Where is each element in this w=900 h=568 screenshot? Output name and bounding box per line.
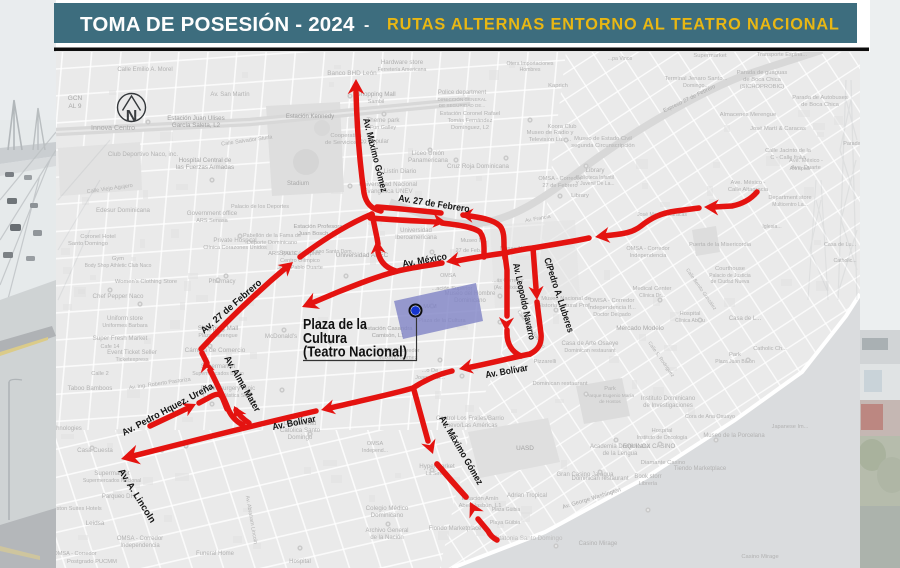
svg-text:Cámara de Comercio: Cámara de Comercio	[185, 347, 246, 354]
svg-text:Medical Center: Medical Center	[633, 286, 672, 292]
svg-text:McDonald's: McDonald's	[265, 333, 297, 340]
svg-text:Museo de Estado Civil: Museo de Estado Civil	[574, 136, 632, 142]
svg-text:OMSA - Corredor: OMSA - Corredor	[626, 246, 669, 252]
svg-text:Hospital: Hospital	[680, 311, 701, 317]
svg-text:Ave. México -: Ave. México -	[730, 180, 765, 186]
svg-text:ARS Senasa: ARS Senasa	[196, 218, 228, 224]
svg-text:Library: Library	[571, 193, 589, 199]
svg-text:Uniformes Barbara: Uniformes Barbara	[102, 323, 147, 329]
svg-text:de Boca Chica: de Boca Chica	[801, 102, 839, 108]
svg-text:Mercado Modelo: Mercado Modelo	[616, 325, 664, 332]
svg-text:de Boca Chica: de Boca Chica	[743, 77, 781, 83]
svg-text:...pa Vinos: ...pa Vinos	[608, 56, 633, 62]
svg-text:Multicentro La...: Multicentro La...	[772, 202, 808, 208]
svg-text:Archivo General: Archivo General	[365, 528, 408, 534]
svg-text:Body Shop Athletic Club Naco: Body Shop Athletic Club Naco	[85, 263, 152, 269]
svg-text:Parada: Parada	[843, 141, 860, 147]
svg-text:Doctor Delgado: Doctor Delgado	[593, 312, 630, 318]
svg-text:Government office: Government office	[187, 210, 238, 217]
svg-text:Independencia If...: Independencia If...	[588, 305, 636, 311]
svg-text:Universidad: Universidad	[400, 228, 432, 234]
svg-text:Parada de guaguas: Parada de guaguas	[737, 70, 788, 76]
svg-text:Pizzarelli: Pizzarelli	[534, 359, 556, 365]
svg-text:Casa de L...: Casa de L...	[729, 316, 762, 322]
svg-text:OMSA: OMSA	[440, 273, 456, 279]
svg-text:Gran Casino Jaragua: Gran Casino Jaragua	[556, 472, 614, 478]
svg-text:Av. San Martín: Av. San Martín	[210, 92, 249, 98]
svg-text:Calle Altagracia: Calle Altagracia	[728, 187, 769, 193]
svg-text:OMSA - Corredor: OMSA - Corredor	[590, 298, 635, 304]
svg-text:Fiondo Marketplace: Fiondo Marketplace	[429, 526, 482, 532]
svg-text:Park: Park	[729, 352, 741, 358]
svg-text:Estación Kennedy: Estación Kennedy	[286, 114, 334, 120]
svg-text:Ticketexpress: Ticketexpress	[115, 357, 148, 363]
svg-text:Museo de la Porcelana: Museo de la Porcelana	[703, 433, 765, 439]
svg-text:Pabellón de la Fama de: Pabellón de la Fama de	[243, 233, 301, 239]
svg-text:AL 9: AL 9	[68, 103, 82, 110]
svg-text:de Hostos: de Hostos	[599, 399, 621, 405]
svg-text:de la Nación: de la Nación	[370, 535, 403, 541]
svg-text:Calle 2: Calle 2	[91, 371, 108, 377]
svg-text:Banco BHD León: Banco BHD León	[327, 70, 377, 77]
svg-text:ARS PALIC: ARS PALIC	[268, 251, 298, 257]
svg-text:EQUINOX CASINO: EQUINOX CASINO	[623, 444, 676, 450]
svg-text:Edesur Dominicana: Edesur Dominicana	[96, 207, 151, 214]
svg-text:OMSA - Corredor: OMSA - Corredor	[53, 551, 96, 557]
svg-text:Panamericana: Panamericana	[408, 157, 448, 164]
svg-text:Almacenes Merengue: Almacenes Merengue	[720, 112, 776, 118]
svg-text:TOMA DE POSESIÓN - 2024: TOMA DE POSESIÓN - 2024	[80, 12, 355, 36]
svg-text:GCN: GCN	[68, 95, 83, 102]
svg-text:Puerta de la Misericordia: Puerta de la Misericordia	[689, 242, 752, 248]
svg-text:Estación Coronel Rafael: Estación Coronel Rafael	[440, 111, 500, 117]
svg-text:UASD: UASD	[516, 445, 534, 452]
svg-text:Independ...: Independ...	[362, 448, 388, 454]
svg-text:Terminal Jenaro Santo...: Terminal Jenaro Santo...	[665, 76, 728, 82]
svg-text:Dominican restaurant: Dominican restaurant	[532, 381, 587, 387]
svg-text:Listín Diario: Listín Diario	[384, 168, 417, 175]
svg-text:Cora de Ana Osuayo: Cora de Ana Osuayo	[685, 414, 735, 420]
svg-text:27 de Feb...: 27 de Feb...	[456, 248, 485, 254]
svg-text:Estación Profesora: Estación Profesora	[294, 224, 344, 230]
svg-text:Iglesia...: Iglesia...	[762, 224, 781, 230]
svg-text:de la Lengua: de la Lengua	[603, 451, 638, 457]
svg-text:OMSA - Corredor: OMSA - Corredor	[538, 176, 581, 182]
svg-text:Innova Centro: Innova Centro	[91, 125, 135, 132]
svg-text:José Martí & Caracas: José Martí & Caracas	[750, 126, 806, 132]
svg-text:Playa Güibia: Playa Güibia	[490, 520, 521, 526]
svg-text:Sambil: Sambil	[368, 99, 384, 105]
svg-text:Calle Emilio A. Morel: Calle Emilio A. Morel	[117, 67, 172, 73]
svg-text:Event Ticket Seller: Event Ticket Seller	[107, 350, 157, 356]
svg-text:Instituto de Oncología: Instituto de Oncología	[637, 435, 688, 441]
svg-text:Tomás Fernández: Tomás Fernández	[448, 118, 493, 124]
svg-text:DE SEGURIDAD DE...: DE SEGURIDAD DE...	[439, 103, 485, 108]
svg-text:-: -	[364, 17, 369, 34]
svg-text:Hombres: Hombres	[519, 67, 540, 73]
svg-text:Supermarket: Supermarket	[693, 53, 727, 59]
svg-text:Hospital: Hospital	[652, 428, 673, 434]
svg-text:de Ciudad Nueva: de Ciudad Nueva	[711, 279, 750, 285]
svg-text:Women's Clothing Store: Women's Clothing Store	[115, 279, 177, 285]
svg-text:Ferretería Americana: Ferretería Americana	[378, 67, 427, 73]
svg-text:Kaprich: Kaprich	[548, 83, 568, 89]
svg-text:Instituto Dominicano: Instituto Dominicano	[641, 396, 696, 402]
svg-text:Cruz Roja Dominicana: Cruz Roja Dominicana	[447, 163, 509, 170]
svg-text:Chef Pepper Naco: Chef Pepper Naco	[93, 293, 144, 300]
svg-text:Casa de Arte Osaeye: Casa de Arte Osaeye	[561, 341, 619, 347]
svg-text:Domínguez, L2: Domínguez, L2	[451, 125, 489, 131]
svg-text:Adrian Tropical: Adrian Tropical	[507, 493, 547, 499]
svg-text:Domingo...: Domingo...	[683, 83, 709, 89]
svg-text:(Teatro Nacional): (Teatro Nacional)	[303, 344, 407, 361]
svg-text:Book storr: Book storr	[634, 474, 661, 480]
svg-text:Colegio Médico: Colegio Médico	[366, 505, 409, 512]
svg-text:Super Fresh Market: Super Fresh Market	[93, 335, 148, 342]
svg-text:Plaza Güibia: Plaza Güibia	[492, 507, 521, 513]
svg-text:N: N	[126, 108, 138, 125]
svg-text:Pharmacy: Pharmacy	[208, 279, 235, 285]
svg-text:RUTAS ALTERNAS ENTORNO AL TEAT: RUTAS ALTERNAS ENTORNO AL TEATRO NACIONA…	[387, 16, 840, 34]
svg-text:Hospital Central de: Hospital Central de	[179, 157, 232, 164]
svg-text:Parque Eugenio María: Parque Eugenio María	[586, 393, 634, 399]
svg-text:Department store: Department store	[768, 195, 811, 201]
svg-text:Hospital: Hospital	[289, 559, 311, 565]
svg-text:Museo de Radio y: Museo de Radio y	[527, 130, 574, 136]
svg-text:Independencia: Independencia	[120, 543, 160, 549]
svg-text:Tiendo Marketplace: Tiendo Marketplace	[674, 466, 727, 472]
svg-text:Park: Park	[604, 386, 616, 392]
svg-text:Hardware store: Hardware store	[381, 59, 424, 66]
svg-text:Independencia: Independencia	[630, 253, 668, 259]
svg-text:OMSA - Corredor: OMSA - Corredor	[117, 536, 163, 542]
svg-text:Japanese Im...: Japanese Im...	[772, 424, 809, 430]
svg-text:Ave. México -: Ave. México -	[789, 158, 823, 164]
svg-text:García Saleta, L2: García Saleta, L2	[172, 122, 221, 129]
svg-text:Iberoamericana: Iberoamericana	[395, 235, 437, 241]
svg-text:Librería: Librería	[639, 481, 657, 487]
svg-text:Calle Jacinto de la: Calle Jacinto de la	[765, 148, 812, 154]
svg-text:Casino Mirage: Casino Mirage	[741, 554, 778, 560]
svg-text:Leidsa: Leidsa	[86, 520, 105, 527]
svg-text:Police department: Police department	[438, 90, 487, 96]
svg-text:Gym: Gym	[112, 256, 124, 262]
svg-text:Dominican restaurant: Dominican restaurant	[564, 348, 616, 354]
svg-text:Taboo Bamboos: Taboo Bamboos	[68, 385, 113, 392]
svg-text:(SICHOPROBIC): (SICHOPROBIC)	[740, 84, 785, 90]
svg-text:Santo Domingo: Santo Domingo	[68, 241, 108, 247]
svg-text:Casino Mirage: Casino Mirage	[579, 541, 618, 547]
svg-text:Camisón, L1: Camisón, L1	[372, 333, 405, 339]
svg-text:Diamante Casino: Diamante Casino	[641, 460, 685, 466]
svg-text:segunda Circunscripción: segunda Circunscripción	[571, 143, 634, 149]
svg-text:Deporte Dominicano: Deporte Dominicano	[247, 240, 297, 246]
svg-text:Estación Juan Ulises: Estación Juan Ulises	[167, 115, 224, 122]
svg-text:Club Deportivo Naco, inc.: Club Deportivo Naco, inc.	[108, 151, 178, 158]
svg-text:27 de Febrero: 27 de Febrero	[542, 183, 577, 189]
svg-text:Courthouse: Courthouse	[715, 266, 745, 272]
svg-text:DIRECCIÓN GENERAL: DIRECCIÓN GENERAL	[437, 96, 486, 102]
svg-text:Dominicano: Dominicano	[371, 512, 404, 519]
svg-text:Citatonia Santo Domingo: Citatonia Santo Domingo	[494, 535, 563, 542]
svg-text:Stadium: Stadium	[287, 181, 309, 187]
svg-text:Weston Suites Hotels: Weston Suites Hotels	[48, 506, 102, 512]
svg-text:Uniform store: Uniform store	[107, 316, 144, 322]
svg-text:Palacio de los Deportes: Palacio de los Deportes	[231, 204, 289, 210]
svg-text:Transporte Espina...: Transporte Espina...	[757, 52, 808, 58]
svg-text:Library: Library	[586, 167, 606, 174]
svg-text:Funeral Home: Funeral Home	[196, 551, 235, 557]
svg-text:las Fuerzas Armadas: las Fuerzas Armadas	[176, 164, 234, 171]
svg-text:OMSA: OMSA	[367, 441, 384, 447]
svg-text:Parada de Autobuses: Parada de Autobuses	[792, 95, 848, 101]
svg-text:Ave. Duarte: Ave. Duarte	[791, 165, 820, 171]
svg-text:Postgrado PUCMM: Postgrado PUCMM	[67, 559, 117, 565]
svg-text:de Investigaciones: de Investigaciones	[643, 403, 693, 409]
svg-text:Casa Cuesta: Casa Cuesta	[77, 447, 113, 454]
svg-text:Catholic Ch...: Catholic Ch...	[753, 346, 787, 352]
